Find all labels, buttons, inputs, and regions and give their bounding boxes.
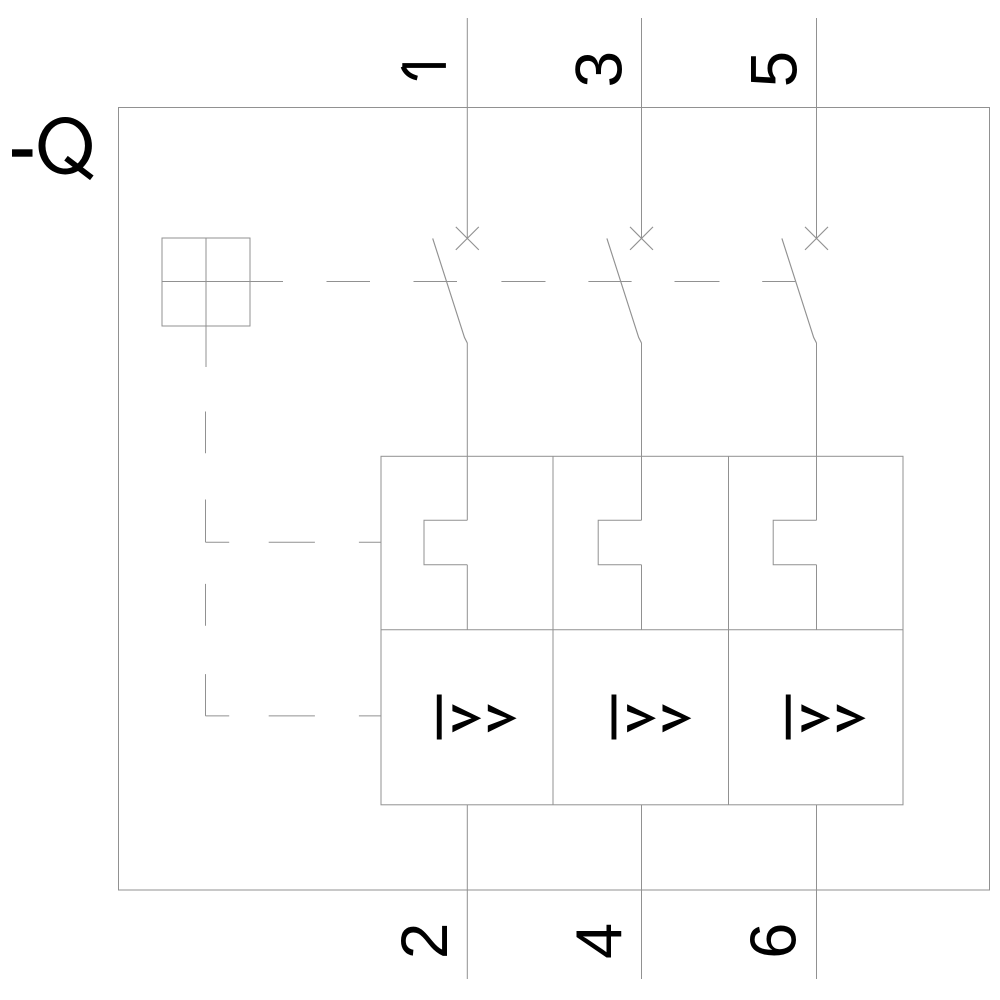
svg-text:2: 2 xyxy=(387,923,461,960)
svg-text:6: 6 xyxy=(737,923,810,959)
svg-text:5: 5 xyxy=(737,51,810,87)
svg-text:4: 4 xyxy=(562,923,635,959)
svg-text:3: 3 xyxy=(562,51,636,88)
